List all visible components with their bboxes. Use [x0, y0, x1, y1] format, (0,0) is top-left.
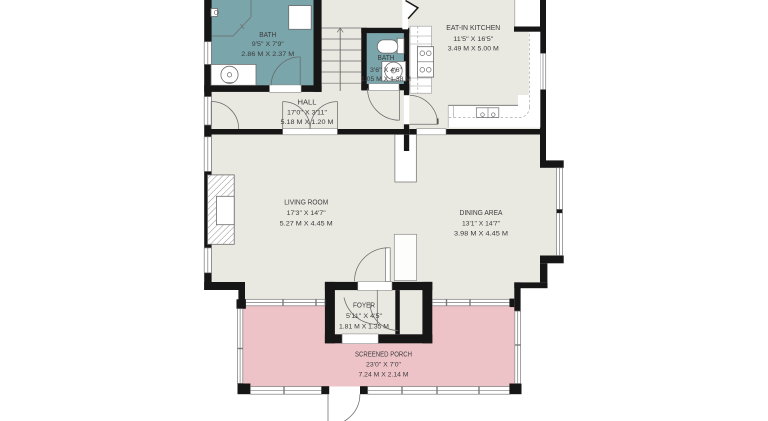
svg-text:11'5" X 16'5": 11'5" X 16'5" — [453, 36, 494, 43]
svg-text:7.24 M X 2.14 M: 7.24 M X 2.14 M — [359, 372, 409, 379]
svg-text:9'5" X 7'9": 9'5" X 7'9" — [252, 41, 285, 48]
svg-text:5.18 M X 1.20 M: 5.18 M X 1.20 M — [281, 119, 334, 126]
svg-text:23'0" X 7'0": 23'0" X 7'0" — [366, 362, 402, 369]
svg-text:DINING AREA: DINING AREA — [460, 208, 503, 217]
svg-text:LIVING ROOM: LIVING ROOM — [284, 198, 328, 207]
svg-text:13'1" X 14'7": 13'1" X 14'7" — [462, 220, 501, 227]
svg-text:5'11" X 4'5": 5'11" X 4'5" — [346, 313, 383, 320]
svg-text:1.05 M X 1.38 M: 1.05 M X 1.38 M — [361, 76, 411, 83]
svg-text:1.81 M X 1.35 M: 1.81 M X 1.35 M — [339, 324, 389, 331]
svg-text:3.98 M X 4.45 M: 3.98 M X 4.45 M — [454, 231, 508, 238]
svg-text:HALL: HALL — [298, 98, 317, 107]
svg-text:SCREENED PORCH: SCREENED PORCH — [355, 350, 412, 359]
svg-text:BATH: BATH — [259, 30, 276, 39]
svg-text:EAT-IN KITCHEN: EAT-IN KITCHEN — [446, 23, 500, 32]
svg-text:FOYER: FOYER — [353, 301, 375, 310]
svg-text:2.86 M X 2.37 M: 2.86 M X 2.37 M — [241, 51, 294, 58]
svg-text:17'3" X 14'7": 17'3" X 14'7" — [287, 210, 327, 217]
svg-text:3'6" X 4'6": 3'6" X 4'6" — [370, 67, 403, 74]
svg-text:5.27 M X 4.45 M: 5.27 M X 4.45 M — [280, 221, 333, 228]
svg-text:17'0" X 3'11": 17'0" X 3'11" — [287, 109, 328, 116]
svg-text:3.49 M X 5.00 M: 3.49 M X 5.00 M — [448, 46, 499, 53]
svg-text:BATH: BATH — [378, 53, 395, 62]
